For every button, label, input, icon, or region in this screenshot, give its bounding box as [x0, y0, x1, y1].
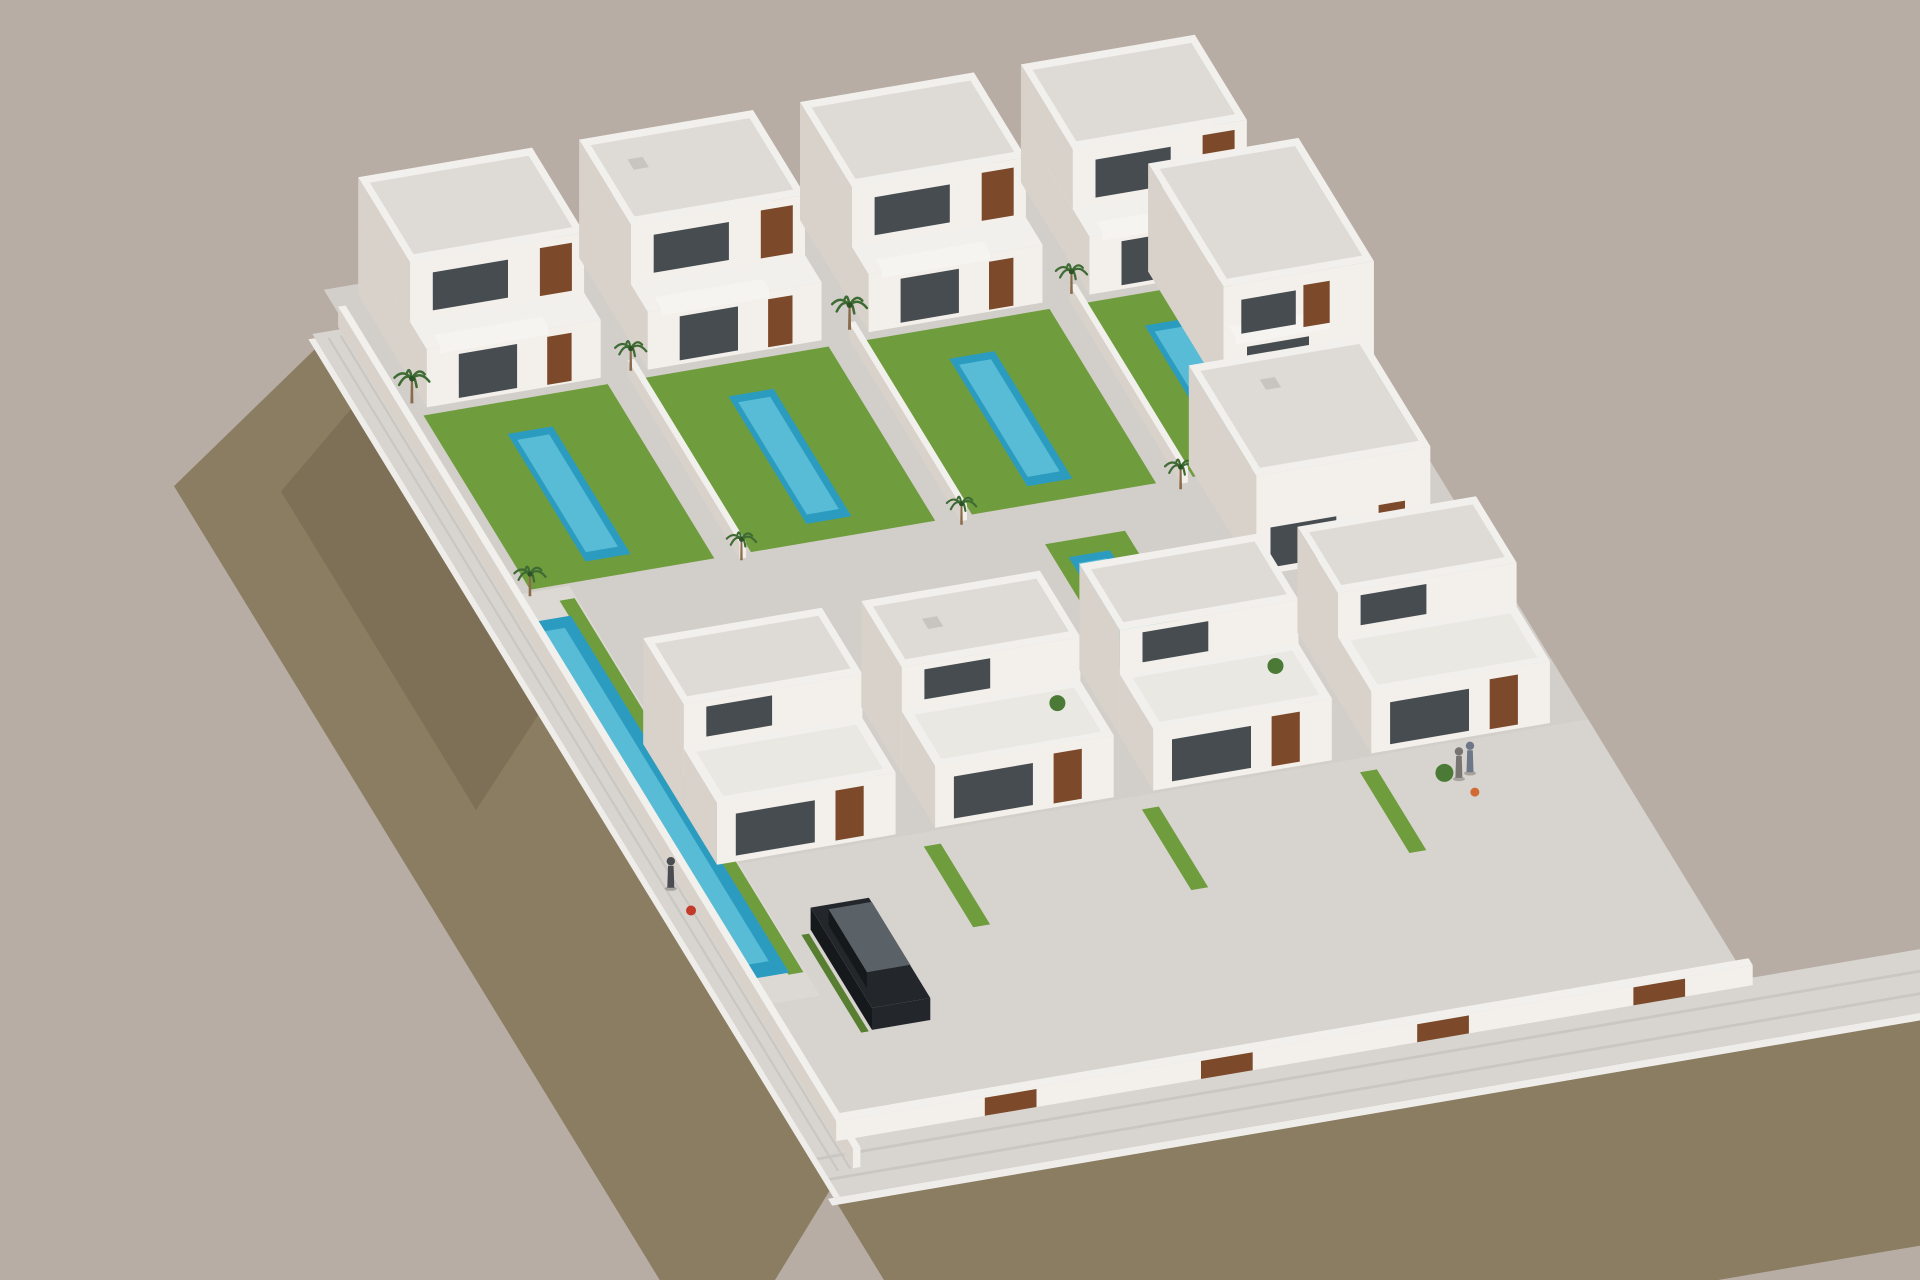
- wood-cladding: [768, 295, 792, 347]
- palm-tree-trunk: [410, 379, 413, 404]
- terrace-plant: [1049, 695, 1065, 711]
- palm-tree-crown: [1178, 465, 1183, 470]
- palm-tree-crown: [628, 346, 633, 351]
- palm-tree-trunk: [740, 540, 743, 561]
- palm-tree-trunk: [1070, 272, 1073, 294]
- terrace-plant: [1267, 658, 1283, 674]
- palm-tree-crown: [847, 302, 853, 308]
- pedestrian-body: [667, 866, 674, 888]
- wood-cladding: [1272, 712, 1300, 767]
- palm-tree-crown: [527, 572, 532, 577]
- perimeter-wall-left-front: [853, 1147, 861, 1168]
- wood-cladding: [547, 333, 571, 385]
- wood-cladding: [989, 258, 1013, 310]
- palm-tree-trunk: [1179, 467, 1182, 489]
- palm-tree-trunk: [529, 574, 532, 596]
- pedestrian-head: [1466, 742, 1474, 750]
- wood-cladding: [1303, 281, 1329, 327]
- wood-cladding: [540, 243, 572, 296]
- palm-tree-crown: [409, 376, 415, 382]
- palm-tree-trunk: [629, 349, 632, 371]
- palm-tree-crown: [959, 502, 964, 507]
- pedestrian-head: [667, 857, 675, 865]
- red-figure: [686, 906, 696, 916]
- wood-cladding: [1490, 675, 1518, 730]
- wood-cladding: [1054, 749, 1082, 804]
- entrance-plant: [1435, 764, 1453, 782]
- palm-tree-trunk: [848, 305, 851, 330]
- pedestrian-body: [1467, 750, 1474, 772]
- pedestrian-head: [1455, 747, 1463, 755]
- wood-cladding: [761, 205, 793, 258]
- palm-tree-crown: [739, 537, 744, 542]
- wood-cladding: [982, 168, 1014, 221]
- palm-tree-trunk: [960, 504, 963, 525]
- orange-object: [1470, 788, 1479, 797]
- architectural-render: [0, 0, 1920, 1280]
- wood-cladding: [836, 786, 864, 841]
- pedestrian-body: [1455, 756, 1462, 778]
- palm-tree-crown: [1069, 269, 1074, 274]
